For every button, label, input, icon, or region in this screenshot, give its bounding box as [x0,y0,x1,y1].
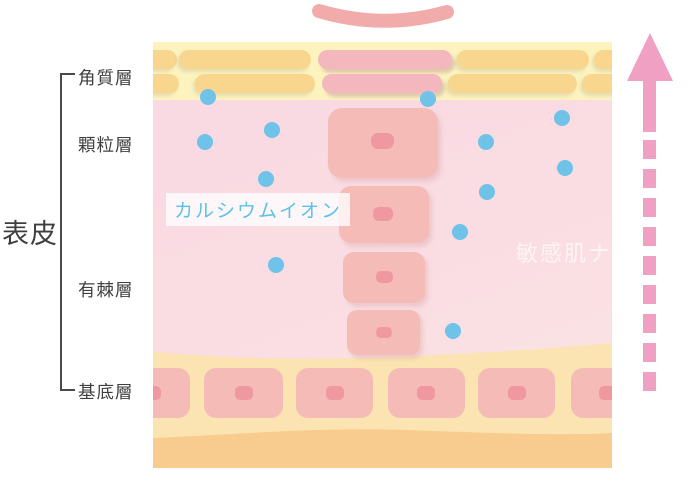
calcium-ion-dot [557,160,573,176]
calcium-ion-dot [258,171,274,187]
layer-label-basal: 基底層 [78,379,134,404]
cell-nucleus [508,386,526,400]
corneocyte-bar-pink [322,74,442,93]
keratinocyte-cell [347,310,420,355]
corneocyte-bar [153,74,179,93]
basal-cell [478,368,555,418]
desquamating-corneocyte-icon [308,0,458,36]
calcium-ion-label: カルシウムイオン [166,193,350,226]
cell-nucleus [326,386,344,400]
corneocyte-bar [179,50,311,69]
cell-nucleus [373,207,393,221]
calcium-ion-dot [264,122,280,138]
calcium-ion-dot [200,89,216,105]
basal-cell [153,368,190,418]
layer-label-stratum-corneum: 角質層 [78,65,134,90]
calcium-ion-dot [478,134,494,150]
layer-label-spinous: 有棘層 [78,277,134,302]
calcium-ion-dot [452,224,468,240]
skin-cross-section: カルシウムイオン 敏感肌ナビ [153,42,612,468]
corneocyte-bar [448,74,577,93]
corneocyte-bar [582,74,612,93]
basal-cell [204,368,283,418]
cell-nucleus [153,386,161,400]
epidermis-bracket [60,73,75,391]
calcium-ion-dot [445,323,461,339]
cell-nucleus [235,386,253,400]
calcium-ion-dot [479,184,495,200]
stratum-corneum-band [153,42,612,100]
keratinocyte-cell [343,252,425,303]
cell-nucleus [417,386,435,400]
corneocyte-bar-pink [318,50,452,69]
calcium-ion-dot [268,257,284,273]
corneocyte-bar [153,50,177,69]
layer-label-granular: 顆粒層 [78,132,134,157]
corneocyte-bar [594,50,612,69]
up-arrow-dashed-tail [643,140,656,393]
basal-cell [388,368,465,418]
calcium-ion-dot [197,134,213,150]
up-arrow-icon [627,33,673,81]
watermark: 敏感肌ナビ [516,236,612,268]
cell-nucleus [376,327,392,338]
basal-cell [571,368,612,418]
keratinocyte-cell [339,186,429,243]
up-arrow-shaft [643,80,656,132]
cell-nucleus [599,386,612,400]
cell-nucleus [371,133,394,149]
calcium-ion-dot [554,110,570,126]
calcium-ion-dot [420,91,436,107]
epidermis-label: 表皮 [2,212,58,251]
keratinocyte-cell [328,108,438,178]
cell-nucleus [376,271,393,283]
corneocyte-bar [457,50,589,69]
basal-cell [296,368,373,418]
